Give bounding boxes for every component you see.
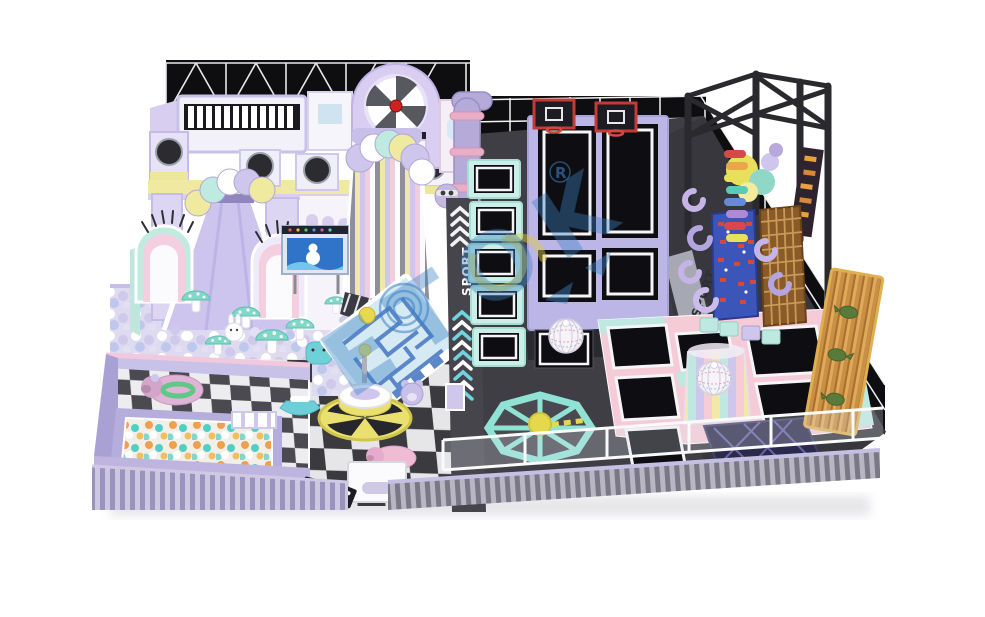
playground-render: SPORT SPORT [0, 0, 985, 617]
eyelash-arch-left [136, 211, 193, 302]
left-turret-turntable [150, 132, 188, 182]
lattice-climb-wall [760, 206, 806, 326]
basketball-hoop [596, 103, 636, 136]
mid-white-panel [308, 92, 352, 150]
wrecking-ball [697, 361, 731, 395]
watermark-registered: R [555, 164, 567, 182]
basketball-hoop [534, 100, 574, 133]
piano-roof-panel [178, 96, 306, 152]
track-podium [446, 384, 464, 410]
toddler-area [94, 354, 320, 484]
wrecking-ball [549, 319, 583, 353]
